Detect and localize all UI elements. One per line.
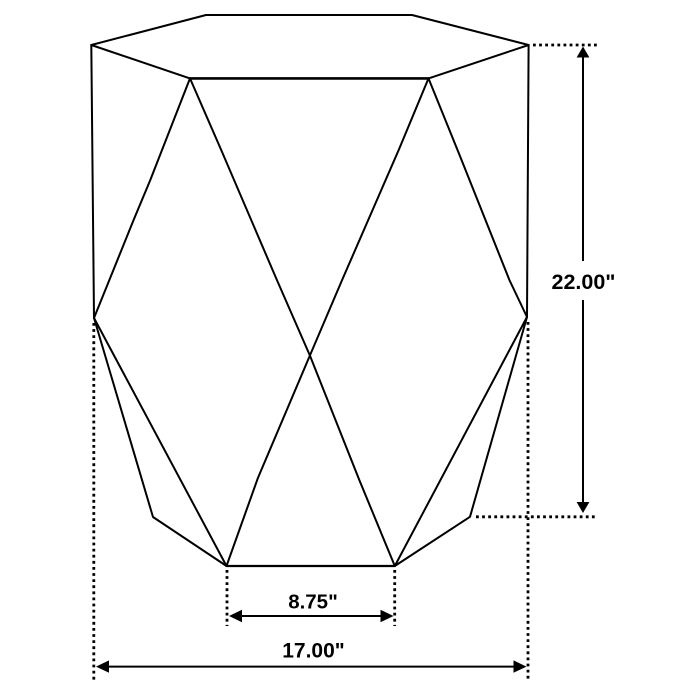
svg-text:17.00": 17.00" [282,640,345,663]
svg-text:22.00": 22.00" [552,270,616,294]
svg-text:8.75": 8.75" [288,591,338,614]
